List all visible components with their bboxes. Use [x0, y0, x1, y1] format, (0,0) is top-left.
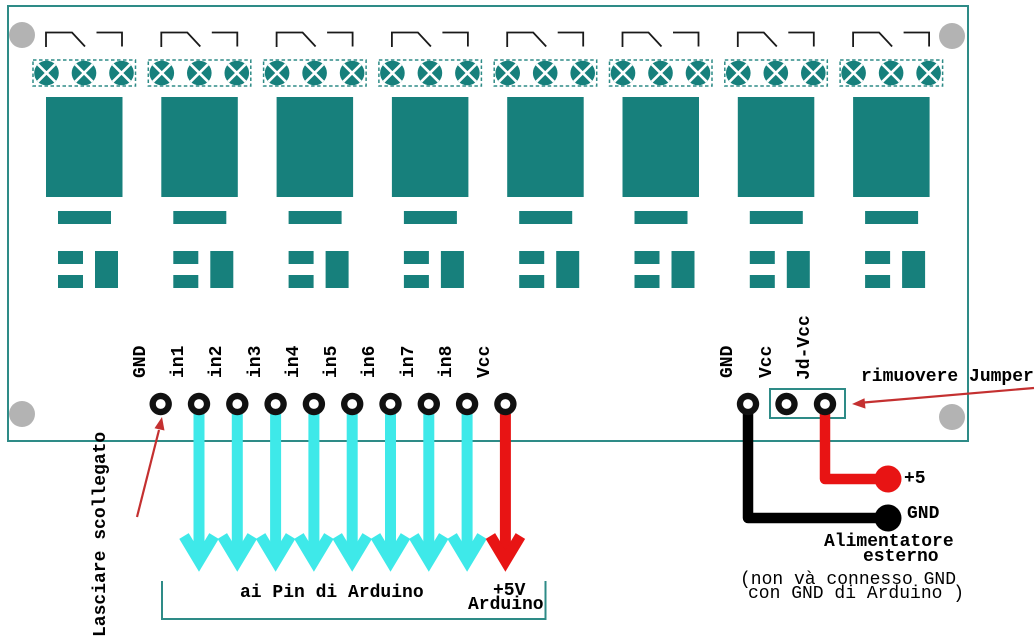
- component-small: [95, 251, 118, 288]
- component-small: [750, 251, 775, 264]
- plus5v-arduino-label: Arduino: [468, 595, 544, 615]
- right-pin-label-gnd: GND: [718, 346, 738, 378]
- component-bar: [519, 211, 572, 224]
- gnd-terminal-label: GND: [907, 504, 939, 524]
- component-small: [58, 275, 83, 288]
- relay-body: [392, 97, 469, 197]
- pin-label-in2: in2: [207, 346, 227, 378]
- pin-label-in3: in3: [246, 346, 266, 378]
- ai-pin-di-arduino-label: ai Pin di Arduino: [240, 583, 424, 603]
- lasciare-scollegato-note: Lasciare scollegato: [91, 432, 111, 637]
- component-small: [289, 251, 314, 264]
- pin-hole-center: [782, 399, 792, 409]
- component-bar: [173, 211, 226, 224]
- lasciare-arrow: [137, 430, 159, 517]
- pin-hole-center: [156, 399, 166, 409]
- plus5-terminal-label: +5: [904, 469, 926, 489]
- component-bar: [635, 211, 688, 224]
- relay-body: [853, 97, 930, 197]
- pin-hole-center: [232, 399, 242, 409]
- component-small: [902, 251, 925, 288]
- relay-body: [46, 97, 123, 197]
- component-bar: [58, 211, 111, 224]
- pin-label-in6: in6: [360, 346, 380, 378]
- relay-body: [623, 97, 700, 197]
- mounting-hole: [9, 401, 35, 427]
- gnd-warning-line2: con GND di Arduino ): [748, 584, 964, 604]
- mounting-hole: [939, 404, 965, 430]
- pin-label-in4: in4: [284, 346, 304, 378]
- pin-hole-center: [386, 399, 396, 409]
- component-small: [173, 275, 198, 288]
- rimuovere-jumper-note: rimuovere Jumper: [861, 367, 1034, 387]
- pin-label-gnd: GND: [131, 346, 151, 378]
- pin-hole-center: [271, 399, 281, 409]
- pin-hole-center: [347, 399, 357, 409]
- component-small: [404, 251, 429, 264]
- pin-hole-center: [424, 399, 434, 409]
- component-small: [787, 251, 810, 288]
- relay-body: [277, 97, 354, 197]
- component-small: [556, 251, 579, 288]
- relay-body: [161, 97, 238, 197]
- component-small: [58, 251, 83, 264]
- pin-hole-center: [194, 399, 204, 409]
- pin-hole-center: [309, 399, 319, 409]
- component-small: [672, 251, 695, 288]
- pin-label-in5: in5: [322, 346, 342, 378]
- component-bar: [865, 211, 918, 224]
- pin-hole-center: [462, 399, 472, 409]
- component-small: [404, 275, 429, 288]
- component-small: [750, 275, 775, 288]
- esterno-label: esterno: [863, 547, 939, 567]
- pin-label-in1: in1: [169, 346, 189, 378]
- relay-body: [507, 97, 584, 197]
- relay-module-wiring-diagram: GND in1 in2 in3 in4 in5 in6 in7 in8 Vcc …: [0, 0, 1035, 640]
- pin-hole-center: [501, 399, 511, 409]
- relay-body: [738, 97, 815, 197]
- component-small: [635, 275, 660, 288]
- component-small: [441, 251, 464, 288]
- mounting-hole: [939, 23, 965, 49]
- plus5-terminal-dot: [875, 466, 902, 493]
- right-pin-label-jd-vcc: Jd-Vcc: [795, 315, 815, 380]
- pin-label-in7: in7: [399, 346, 419, 378]
- mounting-hole: [9, 22, 35, 48]
- component-small: [210, 251, 233, 288]
- component-small: [865, 251, 890, 264]
- component-small: [173, 251, 198, 264]
- component-bar: [404, 211, 457, 224]
- component-small: [519, 275, 544, 288]
- gnd-terminal-dot: [875, 505, 902, 532]
- pin-hole-center: [820, 399, 830, 409]
- component-small: [635, 251, 660, 264]
- right-pin-label-vcc: Vcc: [757, 346, 777, 378]
- component-small: [865, 275, 890, 288]
- component-bar: [289, 211, 342, 224]
- pin-label-vcc: Vcc: [475, 346, 495, 378]
- component-bar: [750, 211, 803, 224]
- component-small: [326, 251, 349, 288]
- component-small: [289, 275, 314, 288]
- component-small: [519, 251, 544, 264]
- pin-label-in8: in8: [437, 346, 457, 378]
- pin-hole-center: [743, 399, 753, 409]
